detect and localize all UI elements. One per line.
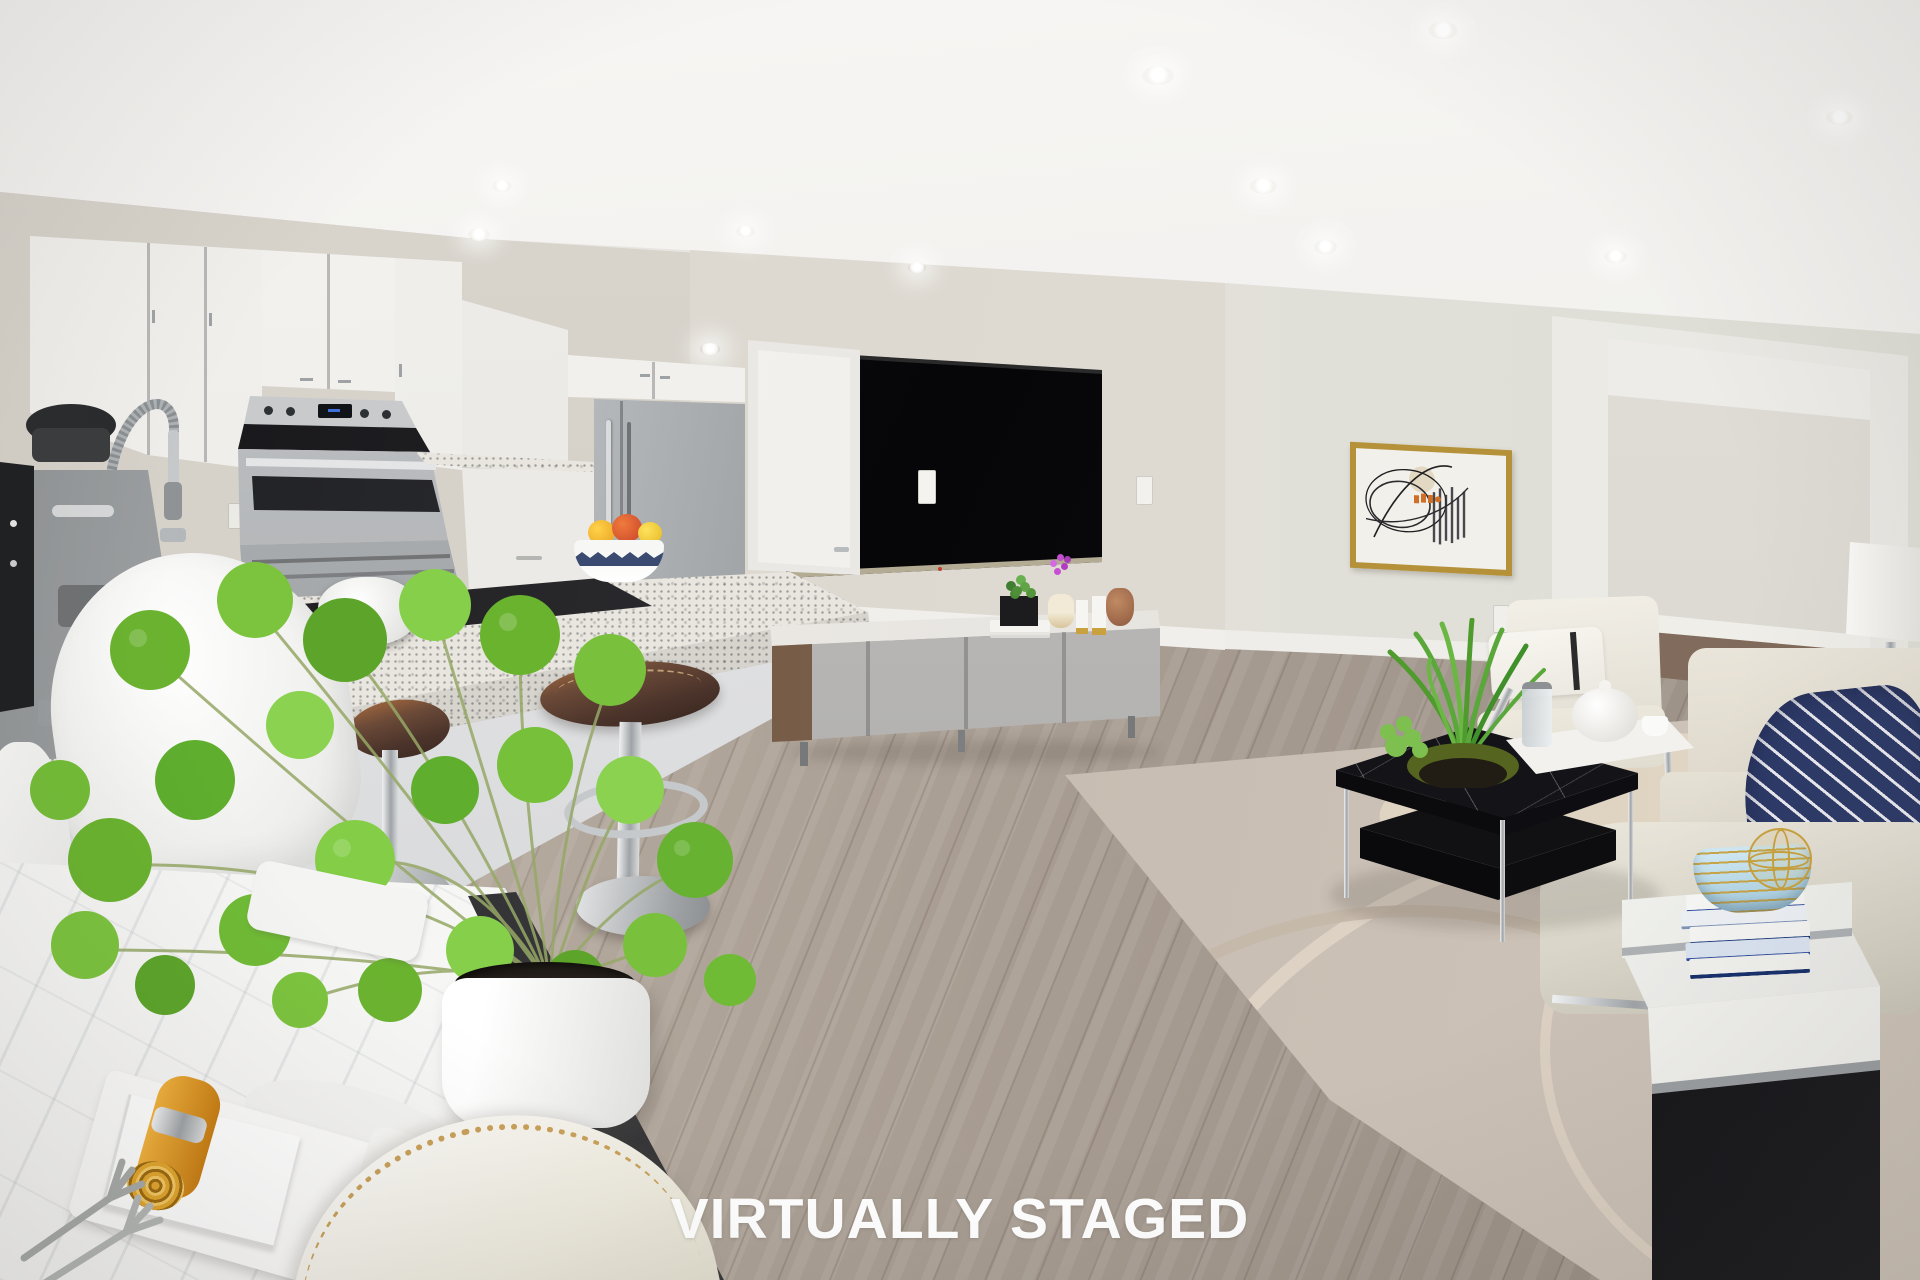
decor-vase-white [1048, 594, 1074, 628]
cabinet-handle-icon [300, 378, 313, 381]
teapot-knob-icon [1599, 680, 1611, 692]
range-knob-icon [264, 406, 273, 415]
wall-art-frame [1350, 442, 1512, 576]
range-knob-icon [360, 409, 369, 418]
range-display-led-icon [328, 409, 340, 412]
recessed-light-icon [1826, 110, 1853, 125]
decor-vase-terracotta [1106, 588, 1134, 626]
cabinet-handle-icon [209, 313, 212, 326]
tv-power-led-icon [938, 567, 942, 571]
range-display [318, 404, 352, 418]
coffee-table-leg [1344, 776, 1349, 898]
coffee-table-leg [1628, 778, 1633, 902]
cabinet-handle-icon [660, 376, 670, 379]
gold-orb-icon [1748, 828, 1812, 890]
credenza-shadow [790, 740, 1160, 764]
recessed-light-icon [1314, 240, 1337, 254]
decor-planter [1000, 596, 1038, 626]
glass-jar [1522, 682, 1552, 747]
teapot [1572, 688, 1638, 742]
cabinet-handle-icon [338, 380, 351, 383]
light-switch [918, 470, 936, 504]
wall-art-abstract [1356, 448, 1494, 557]
espresso-button-icon [10, 520, 17, 527]
virtually-staged-room-photo: VIRTUALLY STAGED [0, 0, 1920, 1280]
decor-candleholder [1092, 596, 1106, 635]
watermark-text: VIRTUALLY STAGED [0, 1186, 1920, 1252]
coffee-table-leg [1500, 820, 1505, 942]
range-knob-icon [286, 407, 295, 416]
cabinet-handle-icon [152, 310, 155, 323]
recessed-light-icon [1250, 178, 1277, 194]
range-knob-icon [382, 410, 391, 419]
table-lamp-shade [1846, 542, 1920, 642]
credenza-leg [958, 730, 965, 752]
recessed-light-icon [908, 262, 926, 273]
recessed-light-icon [1428, 22, 1458, 39]
wall-outlet [1136, 476, 1153, 505]
decor-candleholder [1076, 600, 1088, 634]
plant-pot [442, 978, 650, 1128]
recessed-light-icon [700, 343, 720, 355]
espresso-bean-hopper-base [32, 428, 110, 462]
espresso-button-row [52, 505, 114, 517]
recessed-light-icon [1604, 250, 1627, 263]
recessed-light-icon [1142, 66, 1174, 85]
recessed-light-icon [736, 226, 755, 237]
decor-flowers-icon [1054, 568, 1061, 575]
decor-plant-icon [1012, 586, 1022, 596]
recessed-light-icon [492, 180, 512, 192]
gold-orb-wire [1749, 851, 1809, 869]
recessed-light-icon [468, 228, 490, 241]
tray-cup [1642, 716, 1668, 736]
cabinet-handle-icon [640, 374, 650, 377]
pillow-stripe [1570, 632, 1580, 690]
credenza-leg [1128, 716, 1135, 738]
cabinet-handle-icon [399, 364, 402, 377]
door-handle-icon [834, 547, 849, 552]
